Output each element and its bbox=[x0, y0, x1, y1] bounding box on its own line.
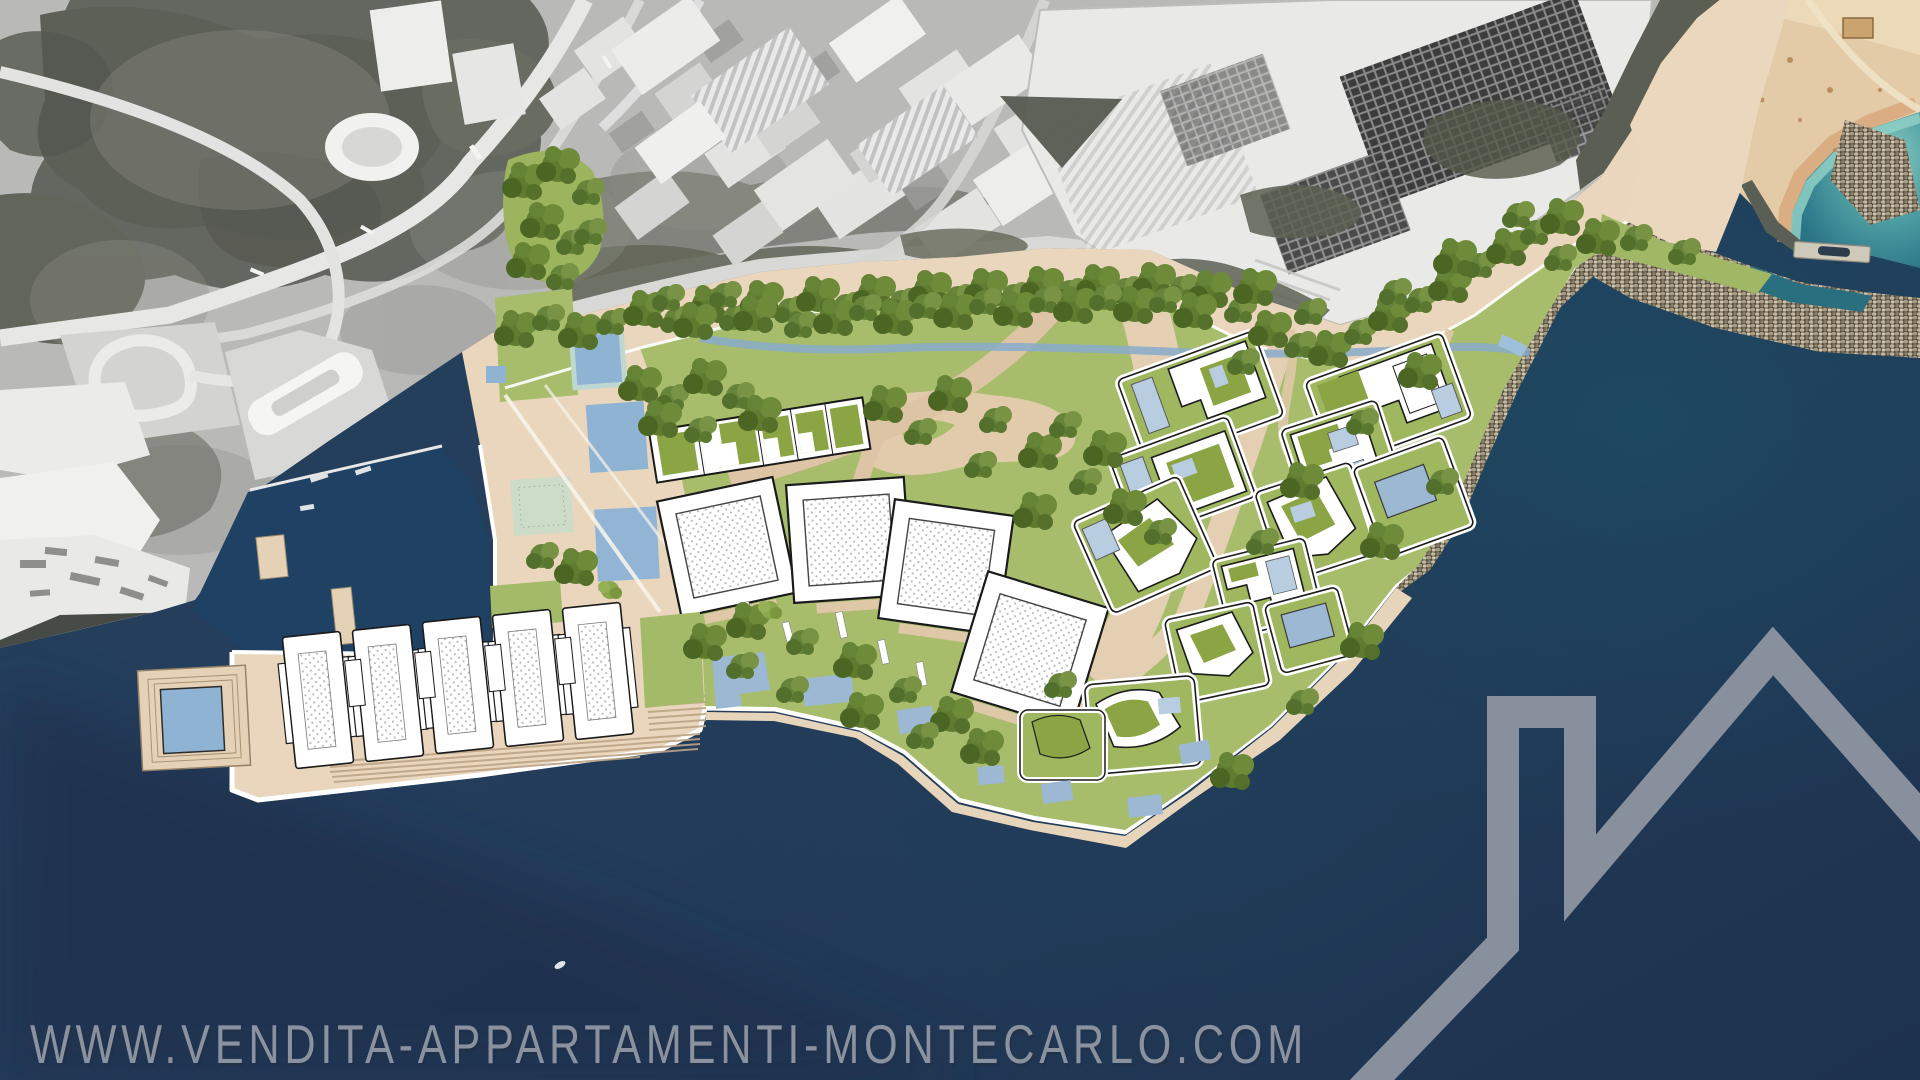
svg-text:WWW.VENDITA-APPARTAMENTI-MONTE: WWW.VENDITA-APPARTAMENTI-MONTECARLO.COM bbox=[30, 1013, 1308, 1075]
